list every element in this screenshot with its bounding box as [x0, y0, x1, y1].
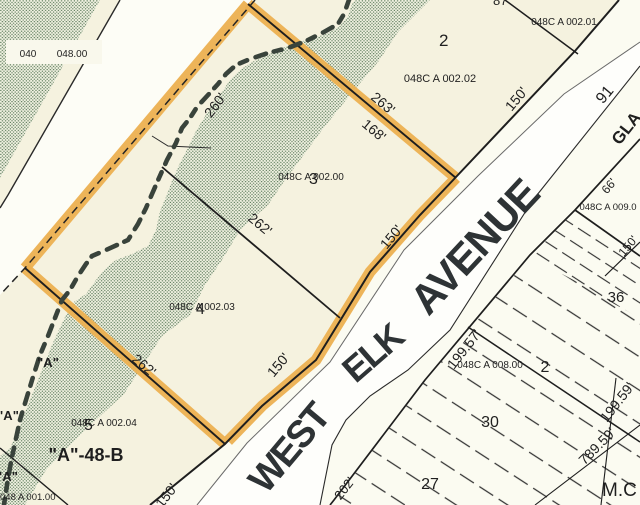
svg-text:30: 30: [481, 414, 499, 431]
svg-text:"A": "A": [0, 408, 19, 423]
svg-text:27: 27: [421, 476, 439, 493]
svg-text:M.C: M.C: [602, 480, 637, 501]
svg-text:2: 2: [439, 31, 448, 50]
svg-text:"A": "A": [37, 355, 59, 370]
svg-text:048C A 002.00: 048C A 002.00: [278, 172, 344, 183]
svg-text:2: 2: [541, 359, 550, 376]
svg-text:048C A 002.01: 048C A 002.01: [531, 17, 597, 28]
svg-text:"A"-48-B: "A"-48-B: [48, 445, 123, 465]
svg-text:048C A 008.00: 048C A 008.00: [457, 360, 523, 371]
svg-text:048 A 001.00: 048 A 001.00: [0, 492, 55, 503]
svg-text:048C A 009.0: 048C A 009.0: [579, 202, 636, 213]
svg-text:36: 36: [608, 289, 625, 306]
svg-text:048C A 002.02: 048C A 002.02: [404, 73, 476, 85]
svg-text:048C A 002.03: 048C A 002.03: [169, 302, 235, 313]
svg-text:"A": "A": [0, 469, 18, 484]
svg-text:040: 040: [20, 49, 37, 60]
svg-text:048.00: 048.00: [57, 49, 88, 60]
svg-text:048C A 002.04: 048C A 002.04: [71, 418, 137, 429]
svg-text:87: 87: [493, 0, 507, 8]
